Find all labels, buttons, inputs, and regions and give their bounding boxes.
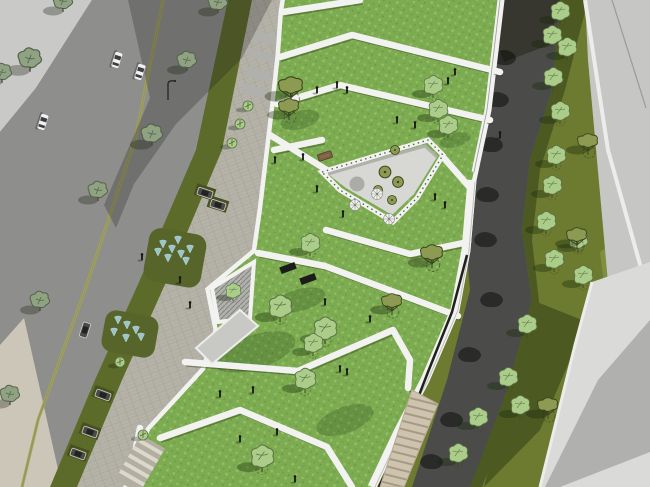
courtyard-shrub bbox=[388, 196, 397, 205]
aerial-render bbox=[0, 0, 650, 487]
parasol bbox=[384, 214, 395, 225]
courtyard-shrub bbox=[379, 166, 391, 178]
planter-circle bbox=[350, 177, 365, 192]
parasol bbox=[350, 200, 361, 211]
planting-island bbox=[142, 226, 208, 289]
courtyard-shrub bbox=[393, 177, 404, 188]
parasol bbox=[372, 189, 383, 200]
courtyard-shrub bbox=[391, 146, 400, 155]
